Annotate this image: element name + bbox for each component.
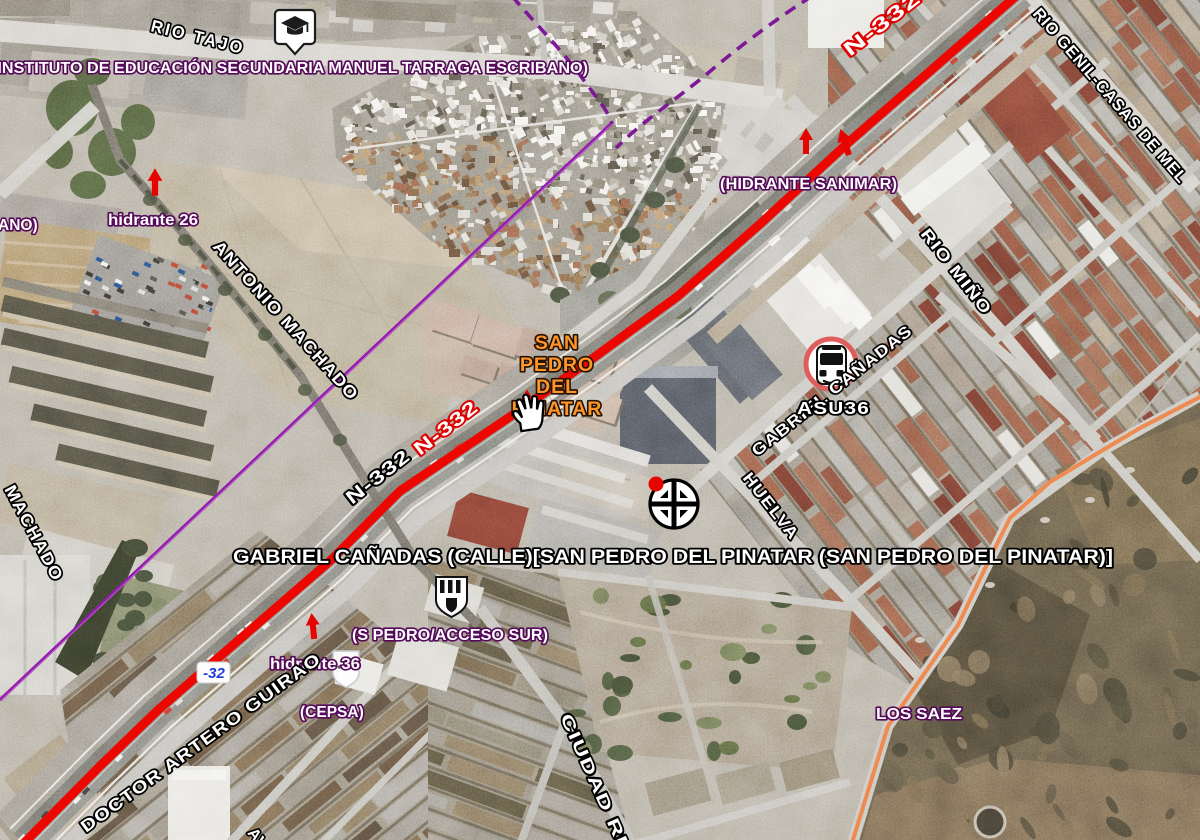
svg-text:LOS SAEZ: LOS SAEZ: [876, 706, 963, 723]
svg-text:(INSTITUTO DE EDUCACIÓN SECUND: (INSTITUTO DE EDUCACIÓN SECUNDARIA MANUE…: [0, 59, 588, 77]
svg-text:GABRIEL CAÑADAS (CALLE)[SAN PE: GABRIEL CAÑADAS (CALLE)[SAN PEDRO DEL PI…: [233, 546, 1113, 568]
svg-text:(HIDRANTE SANIMAR): (HIDRANTE SANIMAR): [720, 176, 897, 193]
svg-text:hidrante 26: hidrante 26: [108, 212, 198, 229]
svg-text:-32: -32: [203, 665, 225, 682]
svg-text:(CEPSA): (CEPSA): [300, 704, 364, 721]
svg-text:DEL: DEL: [536, 376, 578, 398]
svg-text:ASU36: ASU36: [797, 398, 870, 418]
svg-text:ANO): ANO): [0, 217, 38, 234]
svg-text:(S PEDRO/ACCESO SUR): (S PEDRO/ACCESO SUR): [352, 627, 548, 644]
svg-text:PEDRO: PEDRO: [520, 354, 594, 376]
svg-text:SAN: SAN: [535, 332, 579, 354]
